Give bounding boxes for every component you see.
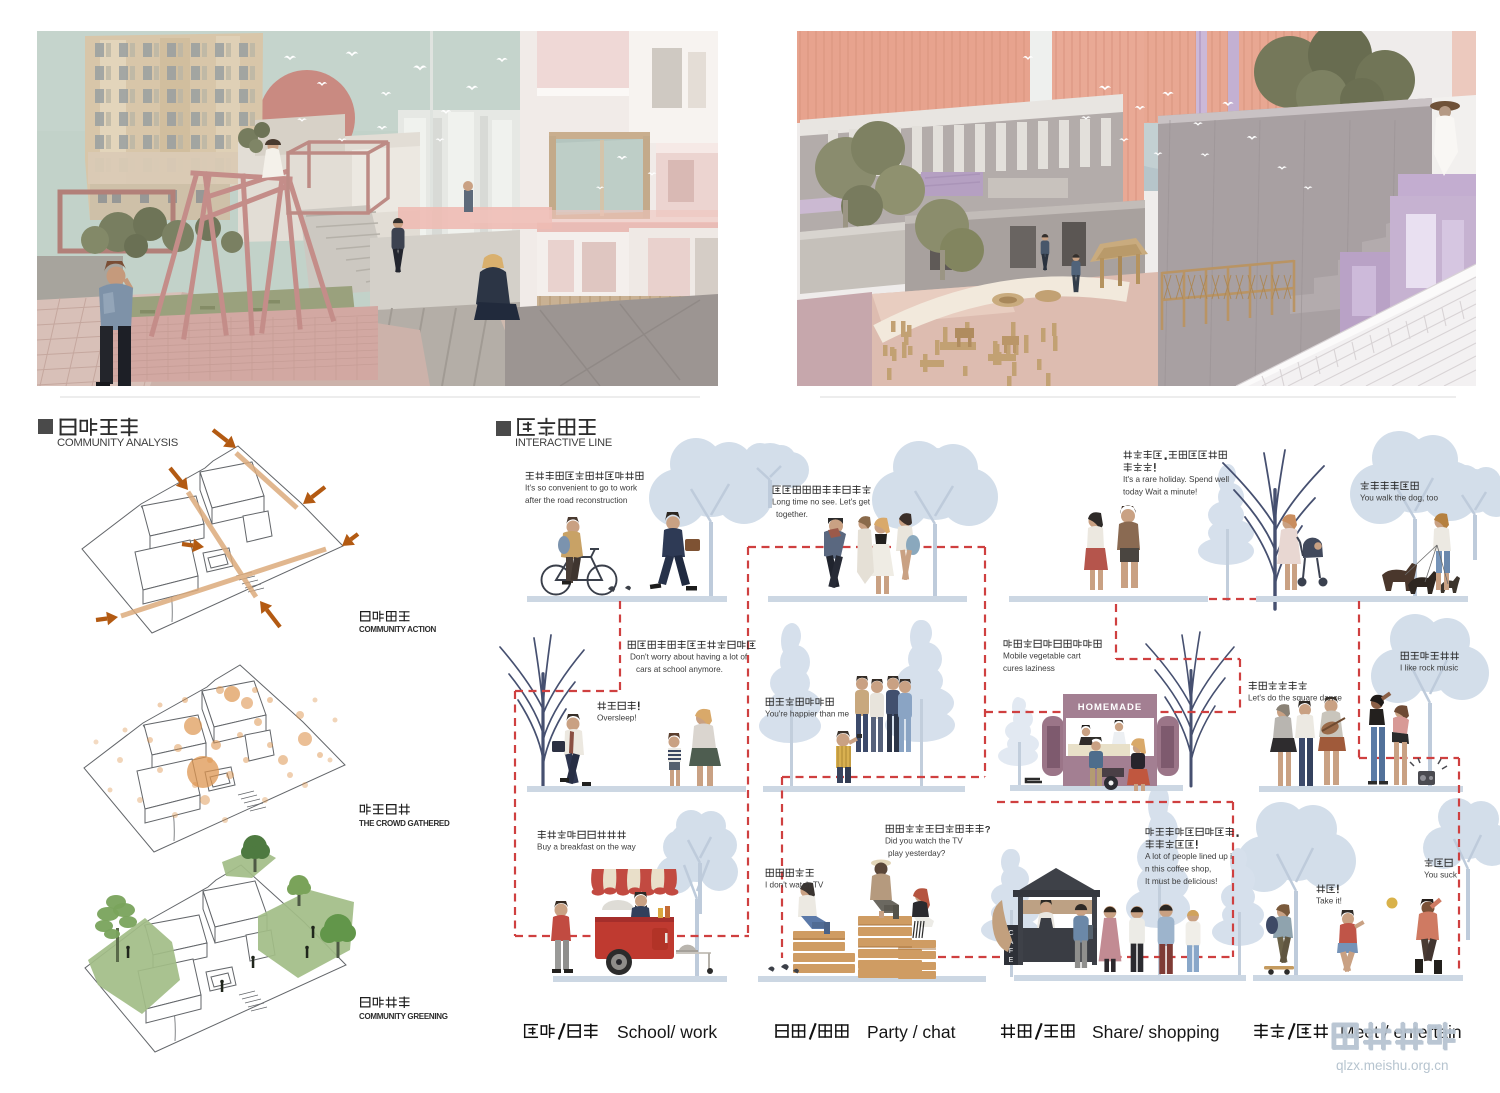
svg-text:School/ work: School/ work xyxy=(617,1022,717,1042)
svg-text:I like rock music: I like rock music xyxy=(1400,664,1458,673)
svg-text:Mobile vegetable cart: Mobile vegetable cart xyxy=(1003,652,1082,661)
svg-text:COMMUNITY GREENING: COMMUNITY GREENING xyxy=(359,1012,448,1021)
svg-text:cars at school anymore.: cars at school anymore. xyxy=(636,665,723,674)
svg-text:Buy a breakfast on the way: Buy a breakfast on the way xyxy=(537,843,637,852)
svg-text:HOMEMADE: HOMEMADE xyxy=(1078,702,1142,713)
svg-text:I don't watch TV: I don't watch TV xyxy=(765,881,824,890)
svg-text:It's so convenient to go to wo: It's so convenient to go to work xyxy=(525,484,638,493)
svg-text:F: F xyxy=(1009,948,1013,955)
svg-text:You walk the dog, too: You walk the dog, too xyxy=(1360,494,1438,503)
svg-text:You suck: You suck xyxy=(1424,871,1458,880)
svg-text:?: ? xyxy=(985,825,991,836)
svg-text:qlzx.meishu.org.cn: qlzx.meishu.org.cn xyxy=(1336,1058,1449,1073)
svg-text:You're happier than me: You're happier than me xyxy=(765,710,850,719)
svg-text:Party / chat: Party / chat xyxy=(867,1022,956,1042)
svg-text:together.: together. xyxy=(776,510,808,519)
svg-text:It's a rare holiday. Spend wel: It's a rare holiday. Spend well xyxy=(1123,475,1229,484)
svg-text:Let's do the square dance: Let's do the square dance xyxy=(1248,694,1342,703)
svg-text:today Wait a minute!: today Wait a minute! xyxy=(1123,488,1197,497)
svg-text:after the road reconstruction: after the road reconstruction xyxy=(525,496,628,505)
svg-text:E: E xyxy=(1009,957,1014,964)
svg-text:COMMUNITY ACTION: COMMUNITY ACTION xyxy=(359,625,436,634)
svg-text:Oversleep!: Oversleep! xyxy=(597,714,637,723)
svg-text:Long time no see. Let's get: Long time no see. Let's get xyxy=(772,498,871,507)
svg-text:play yesterday?: play yesterday? xyxy=(888,849,946,858)
svg-text:COMMUNITY ANALYSIS: COMMUNITY ANALYSIS xyxy=(57,437,179,449)
svg-text:Share/ shopping: Share/ shopping xyxy=(1092,1022,1219,1042)
svg-text:Take it!: Take it! xyxy=(1316,897,1342,906)
svg-text:cures laziness: cures laziness xyxy=(1003,664,1055,673)
svg-text:It must be delicious!: It must be delicious! xyxy=(1145,877,1217,886)
svg-text:n this coffee shop,: n this coffee shop, xyxy=(1145,865,1211,874)
svg-text:INTERACTIVE LINE: INTERACTIVE LINE xyxy=(515,437,612,449)
svg-text:THE CROWD GATHERED: THE CROWD GATHERED xyxy=(359,819,450,828)
svg-text:A lot of people lined up i: A lot of people lined up i xyxy=(1145,852,1232,861)
svg-text:Did you watch the TV: Did you watch the TV xyxy=(885,837,963,846)
svg-text:Don't worry about having a lot: Don't worry about having a lot of xyxy=(630,653,748,662)
